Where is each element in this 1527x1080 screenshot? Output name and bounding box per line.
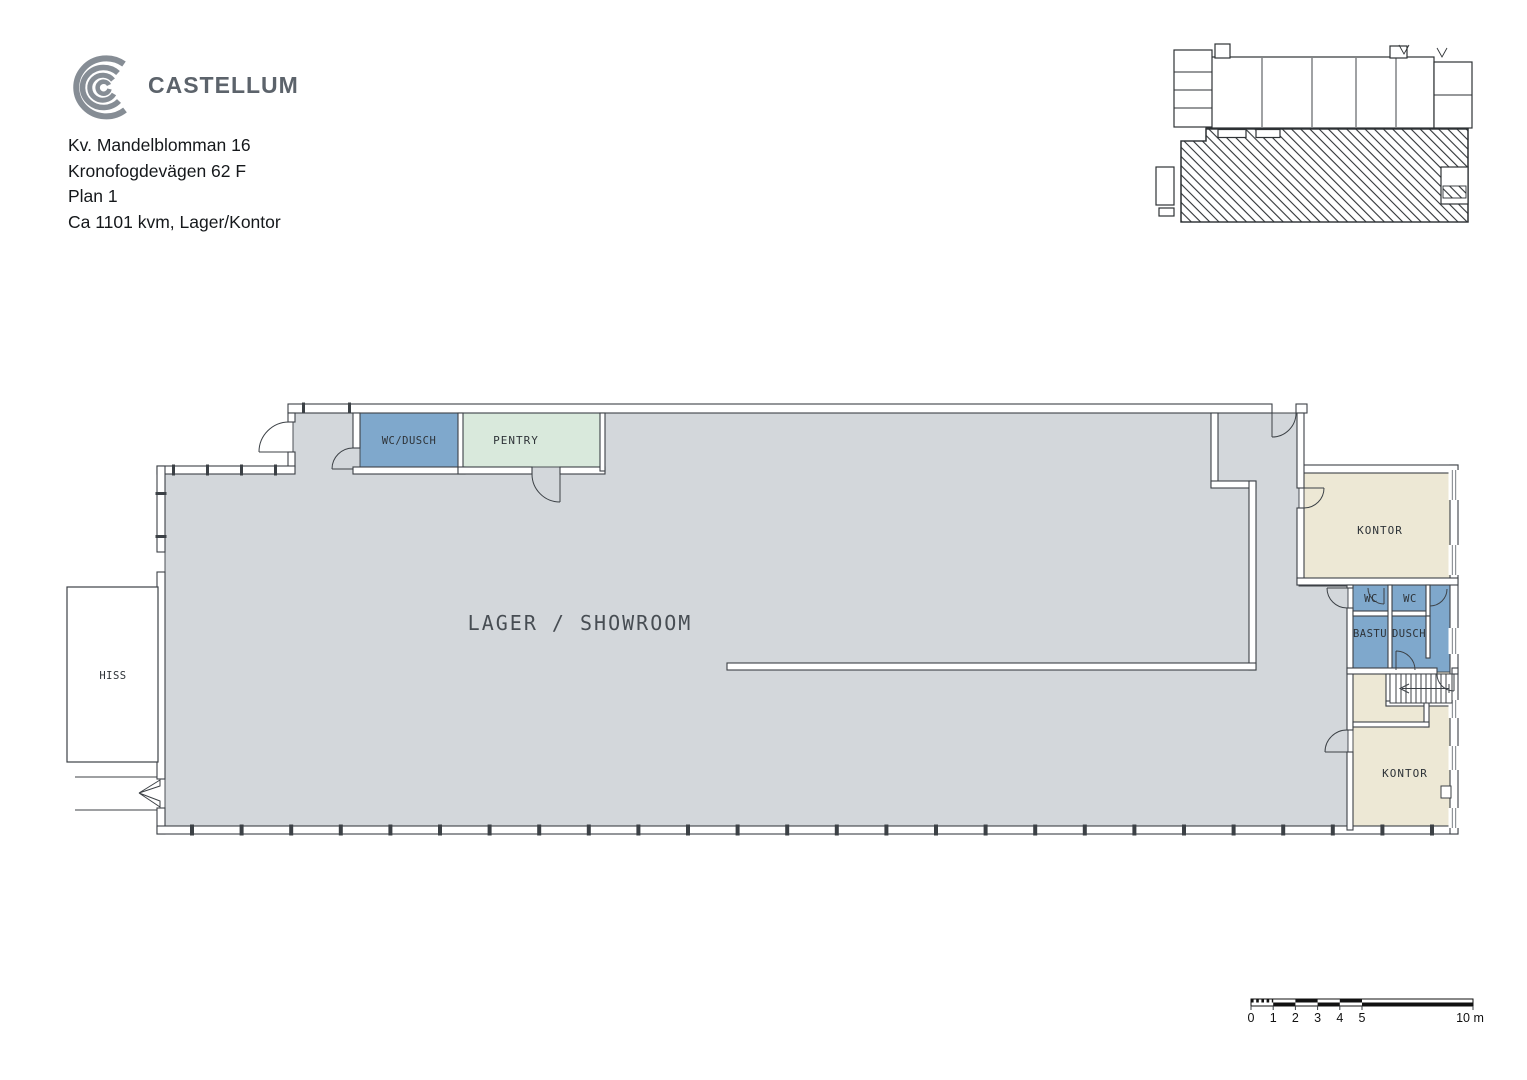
staircase xyxy=(1390,674,1452,703)
overview-building-band xyxy=(1206,57,1434,128)
entrance-corridor xyxy=(75,777,160,810)
scale-label-3: 3 xyxy=(1314,1011,1321,1025)
scale-bar: 0 1 2 3 4 5 10 m xyxy=(1248,999,1484,1025)
label-wc-dusch: WC/DUSCH xyxy=(382,435,437,447)
label-bastu: BASTU xyxy=(1353,628,1387,640)
label-hiss: HISS xyxy=(99,670,126,682)
scale-label-2: 2 xyxy=(1292,1011,1299,1025)
label-kontor-lower: KONTOR xyxy=(1382,767,1428,780)
scale-label-1: 1 xyxy=(1270,1011,1277,1025)
overview-highlight-hatch xyxy=(1181,129,1468,222)
wall-niche xyxy=(1441,786,1451,798)
scale-label-10m: 10 m xyxy=(1456,1011,1484,1025)
label-kontor-upper: KONTOR xyxy=(1357,524,1403,537)
label-dusch: DUSCH xyxy=(1392,628,1426,640)
overview-left-annex xyxy=(1174,50,1212,127)
scale-label-4: 4 xyxy=(1336,1011,1343,1025)
room-lager-showroom xyxy=(165,413,1348,829)
double-door-leaf xyxy=(139,793,160,807)
double-door-leaf xyxy=(139,780,160,793)
floor-plan: WC/DUSCH PENTRY LAGER / SHOWROOM HISS KO… xyxy=(67,404,1460,834)
scale-label-5: 5 xyxy=(1359,1011,1366,1025)
overview-left-appendix xyxy=(1156,167,1174,205)
door-top-left xyxy=(259,422,289,452)
overview-key-map xyxy=(1156,44,1472,222)
overview-entrance-arrow xyxy=(1437,48,1447,57)
floorplan-canvas: WC/DUSCH PENTRY LAGER / SHOWROOM HISS KO… xyxy=(0,0,1527,1080)
label-pentry: PENTRY xyxy=(493,434,539,447)
label-wc-1: WC xyxy=(1364,593,1378,605)
label-lager-showroom: LAGER / SHOWROOM xyxy=(468,611,693,635)
scale-label-0: 0 xyxy=(1248,1011,1255,1025)
label-wc-2: WC xyxy=(1403,593,1417,605)
